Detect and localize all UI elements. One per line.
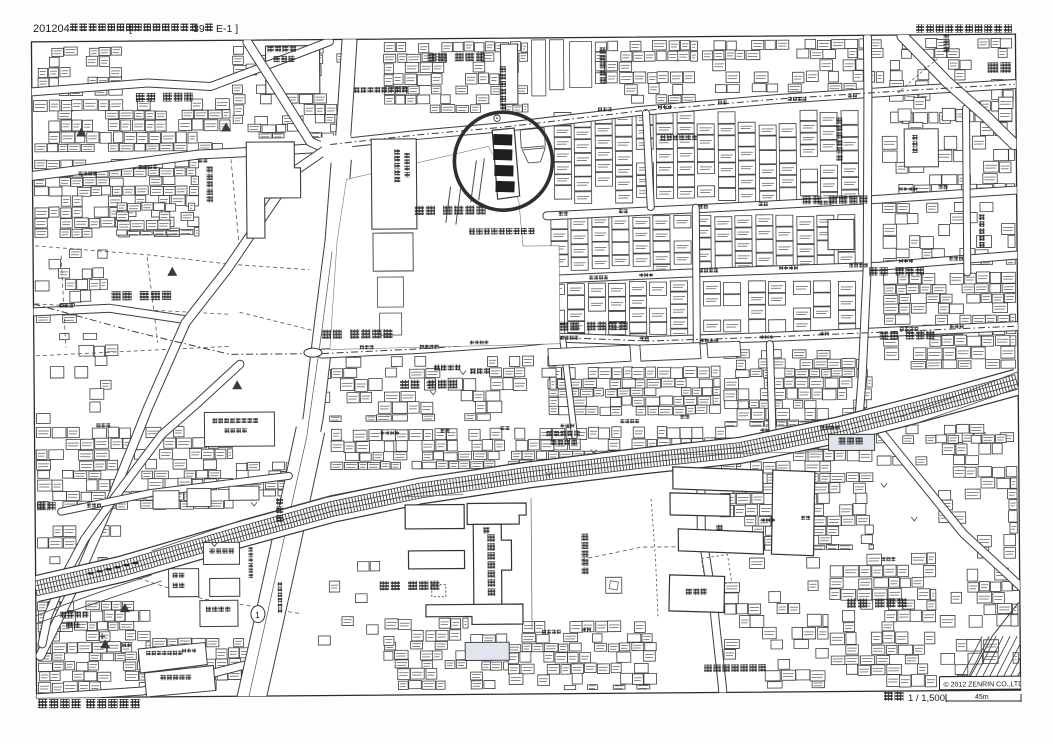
svg-text:© 2012 ZENRIN CO.,LTD.: © 2012 ZENRIN CO.,LTD. xyxy=(943,680,1025,689)
svg-text:39: 39 xyxy=(193,23,205,35)
svg-text:45m: 45m xyxy=(975,694,989,701)
svg-text:1 / 1,500: 1 / 1,500 xyxy=(908,693,945,704)
svg-text:1: 1 xyxy=(255,610,260,620)
svg-text:E-1 ]: E-1 ] xyxy=(216,23,238,35)
svg-text:[: [ xyxy=(129,23,132,35)
svg-text:201204: 201204 xyxy=(33,23,70,35)
